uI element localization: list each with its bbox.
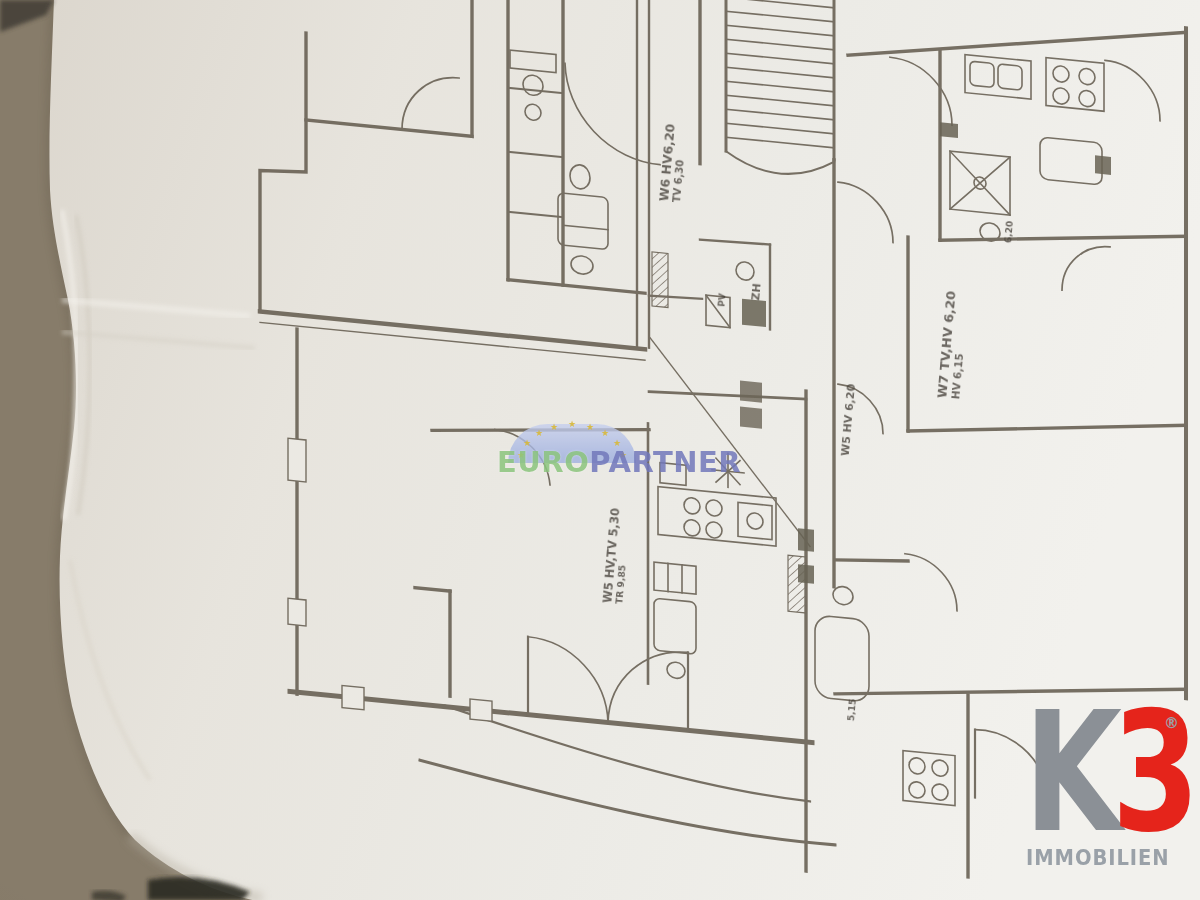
floor-plan-photo: W6 HV6,20 TV 6,30 W7 TV,HV 6,20 HV 6,15 …	[0, 0, 1200, 900]
room-label-zh: ZH	[750, 283, 764, 301]
europartner-watermark: EUROPARTNER	[497, 445, 741, 479]
eu-star-icon: ★	[535, 429, 543, 438]
eu-star-icon: ★	[601, 429, 609, 438]
eu-star-icon: ★	[568, 420, 576, 429]
dimension-label-620: 6,20	[1003, 220, 1015, 243]
registered-trademark-icon: ®	[1164, 714, 1179, 732]
k3-logo-3: 3	[1112, 677, 1190, 869]
k3-logo-k: K	[1024, 677, 1112, 869]
watermark-partner-text: PARTNER	[589, 445, 741, 479]
eu-star-icon: ★	[586, 423, 594, 432]
k3-logo-subtitle: IMMOBILIEN	[1026, 846, 1170, 870]
room-label-pv: PV	[716, 293, 727, 307]
watermark-euro-text: EURO	[497, 445, 589, 479]
dimension-label-515: 5,15	[846, 698, 858, 721]
eu-star-icon: ★	[550, 423, 558, 432]
